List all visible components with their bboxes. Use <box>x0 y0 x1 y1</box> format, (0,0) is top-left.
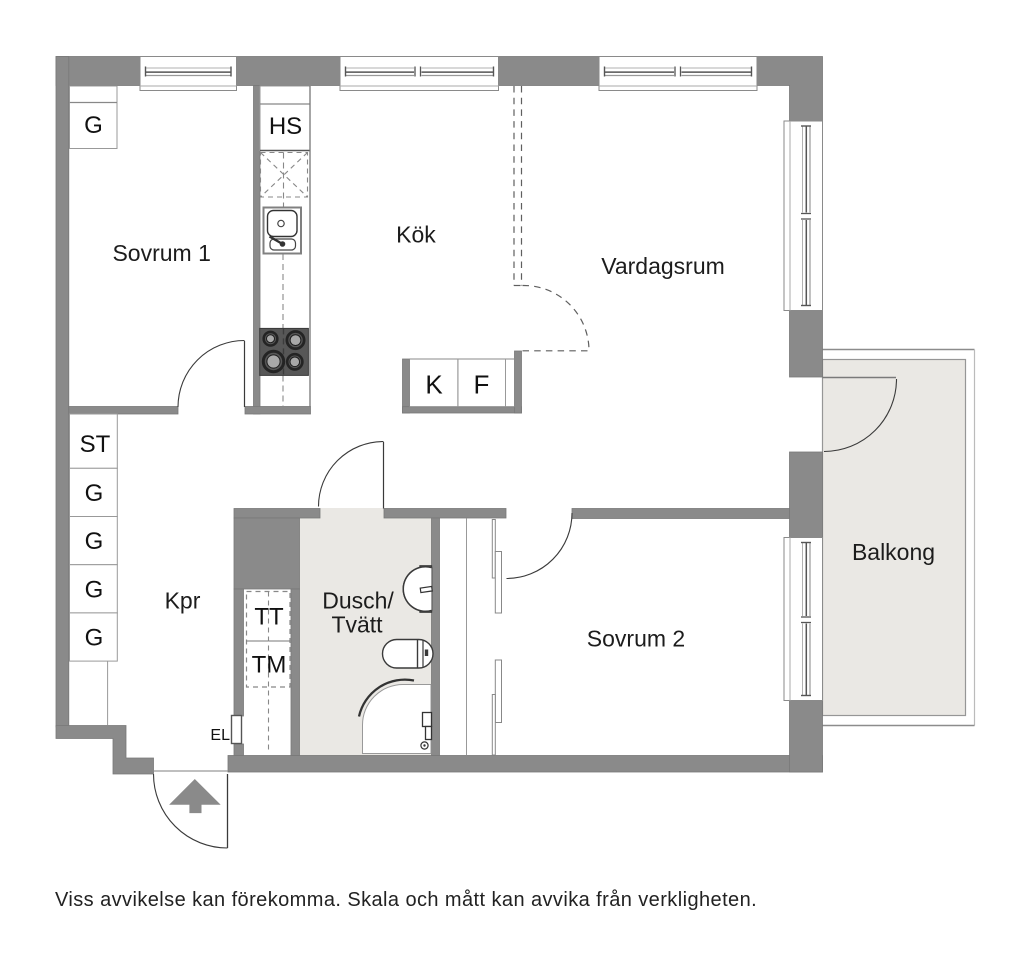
svg-text:Dusch/: Dusch/ <box>322 588 394 614</box>
svg-text:F: F <box>474 370 490 400</box>
svg-text:G: G <box>85 480 104 507</box>
svg-text:HS: HS <box>269 113 302 140</box>
svg-text:K: K <box>425 370 443 400</box>
svg-text:ST: ST <box>80 431 111 458</box>
svg-text:G: G <box>85 576 104 603</box>
svg-text:TM: TM <box>252 652 287 679</box>
svg-text:G: G <box>85 625 104 652</box>
svg-text:Viss avvikelse kan förekomma.: Viss avvikelse kan förekomma. Skala och … <box>55 889 757 911</box>
svg-text:TT: TT <box>254 604 284 631</box>
svg-text:G: G <box>84 112 103 139</box>
svg-text:Vardagsrum: Vardagsrum <box>601 253 725 279</box>
svg-text:Sovrum 2: Sovrum 2 <box>587 626 685 652</box>
svg-text:Tvätt: Tvätt <box>331 612 383 638</box>
svg-text:Sovrum 1: Sovrum 1 <box>112 240 210 266</box>
svg-text:EL: EL <box>210 727 230 744</box>
svg-text:G: G <box>85 528 104 555</box>
svg-text:Kök: Kök <box>396 222 436 248</box>
svg-text:Kpr: Kpr <box>165 588 201 614</box>
svg-text:Balkong: Balkong <box>852 539 935 565</box>
